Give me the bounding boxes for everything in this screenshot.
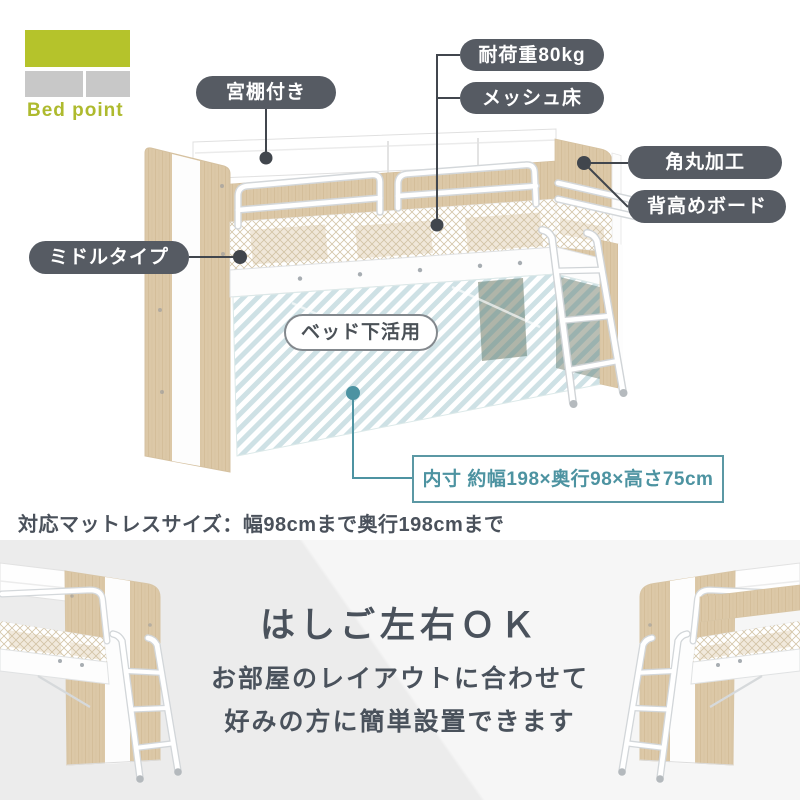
- mattress-size-note: 対応マットレスサイズ：幅98cmまで奥行198cmまで: [18, 508, 504, 537]
- label-shelf: 宮棚付き: [196, 76, 336, 109]
- product-infographic: { "logo": { "title": "Bed point" }, "cal…: [0, 0, 800, 800]
- bed-point-logo: Bed point: [25, 30, 145, 122]
- logo-text: Bed point: [27, 100, 124, 122]
- label-mesh-floor: メッシュ床: [460, 82, 604, 114]
- label-middle-type: ミドルタイプ: [29, 241, 189, 274]
- label-load-capacity: 耐荷重80kg: [460, 39, 604, 71]
- label-tall-board: 背高めボード: [628, 190, 786, 223]
- left-panel: [145, 148, 230, 472]
- logo-gray-block-left: [25, 71, 83, 97]
- bottom-heading: はしご左右ＯＫ: [0, 597, 800, 648]
- logo-gray-block-right: [86, 71, 130, 97]
- label-inner-dimensions: 内寸 約幅198×奥行98×高さ75cm: [412, 455, 724, 503]
- label-rounded-corners: 角丸加工: [628, 146, 782, 179]
- bed-main: [145, 129, 646, 472]
- bottom-subline-1: お部屋のレイアウトに合わせて: [0, 659, 800, 695]
- label-under-bed: ベッド下活用: [284, 314, 438, 351]
- bottom-subline-2: 好みの方に簡単設置できます: [0, 702, 800, 738]
- logo-green-block: [25, 30, 130, 67]
